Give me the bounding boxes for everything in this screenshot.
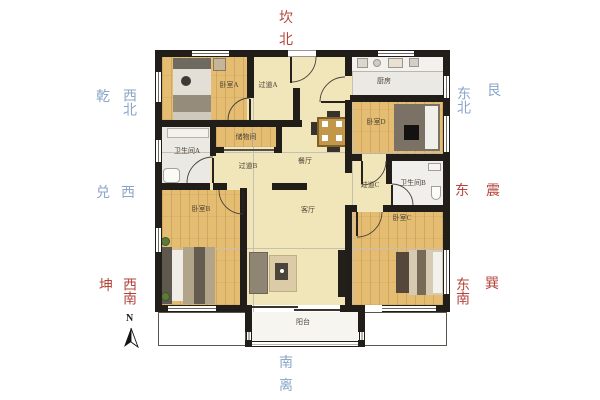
compass-north-trigram: 坎 bbox=[279, 11, 293, 26]
room-label-living: 客厅 bbox=[301, 206, 315, 214]
room-label-corridor-a: 过道A bbox=[258, 81, 277, 89]
compass-north-direction: 北 bbox=[279, 33, 293, 48]
compass-northeast-direction: 东北 bbox=[455, 86, 470, 114]
compass-southwest-trigram: 坤 bbox=[99, 279, 113, 294]
room-label-bathroom-b: 卫生间B bbox=[400, 179, 426, 187]
compass-northeast-trigram: 艮 bbox=[487, 84, 501, 99]
room-label-bedroom-d: 卧室D bbox=[366, 118, 385, 126]
compass-northwest-direction: 西北 bbox=[121, 88, 136, 116]
room-label-balcony: 阳台 bbox=[296, 318, 310, 326]
room-label-storage: 储物间 bbox=[236, 133, 257, 141]
compass-northwest-trigram: 乾 bbox=[96, 90, 110, 105]
room-label-bedroom-a: 卧室A bbox=[219, 81, 238, 89]
compass-southeast-direction: 东南 bbox=[454, 277, 469, 305]
compass-west-trigram: 兑 bbox=[96, 186, 110, 201]
compass-southwest-direction: 西南 bbox=[121, 277, 136, 305]
door-arcs-overlay bbox=[0, 0, 600, 400]
north-arrow-label: N bbox=[126, 313, 133, 324]
north-arrow-icon bbox=[124, 328, 138, 347]
room-label-corridor-c: 过道C bbox=[361, 181, 380, 189]
compass-southeast-trigram: 巽 bbox=[485, 277, 499, 292]
compass-south-trigram: 离 bbox=[279, 379, 293, 394]
room-label-kitchen: 厨房 bbox=[377, 77, 391, 85]
room-label-bathroom-a: 卫生间A bbox=[174, 147, 200, 155]
room-label-bedroom-b: 卧室B bbox=[192, 205, 211, 213]
room-label-corridor-b: 过道B bbox=[239, 162, 258, 170]
compass-east-trigram: 震 bbox=[486, 184, 500, 199]
room-label-bedroom-c: 卧室C bbox=[393, 214, 412, 222]
floorplan-page: 卧室A 过道A 厨房 卧室D 储物间 卫生间A 过道B 餐厅 过道C 卫生间B … bbox=[0, 0, 600, 400]
room-label-dining: 餐厅 bbox=[298, 157, 312, 165]
compass-south-direction: 南 bbox=[279, 356, 293, 371]
compass-east-direction: 东 bbox=[455, 184, 469, 199]
compass-west-direction: 西 bbox=[121, 186, 135, 201]
